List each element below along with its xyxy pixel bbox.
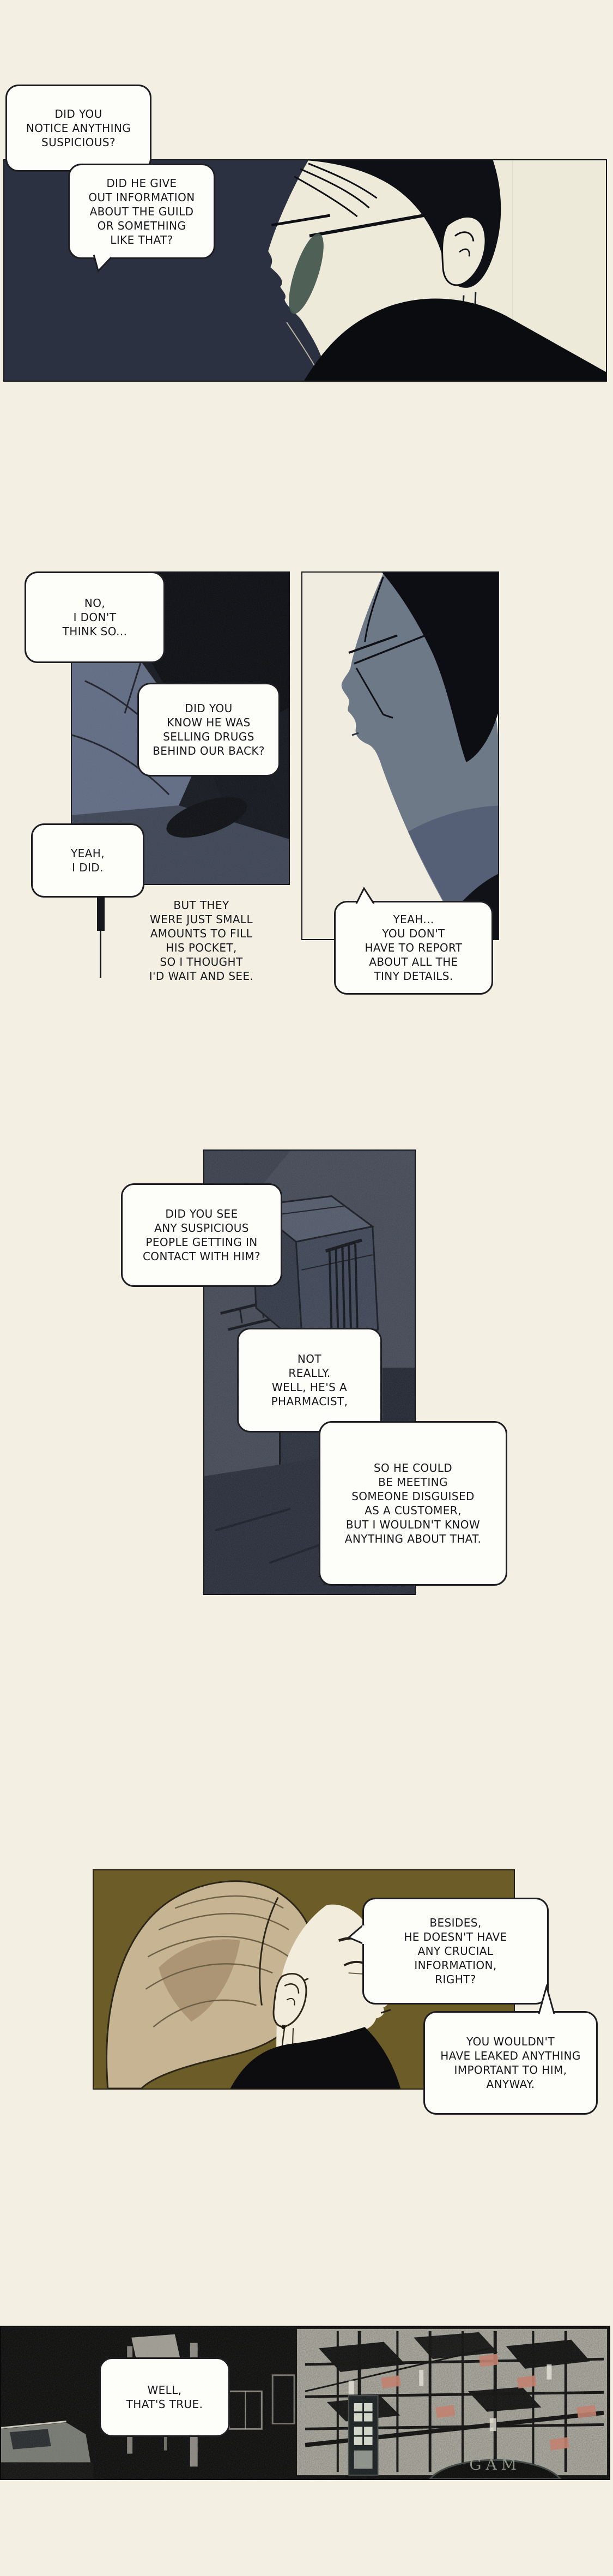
panel-6-art: GAM	[1, 2327, 609, 2479]
bubble-tail-up	[355, 887, 377, 905]
bubble-connector-line	[100, 931, 101, 978]
bubble-connector-bar	[97, 897, 105, 931]
speech-bubble-10: SO HE COULD BE MEETING SOMEONE DISGUISED…	[319, 1421, 507, 1586]
bubble-tail-left	[348, 1923, 365, 1945]
speech-bubble-9: NOT REALLY. WELL, HE'S A PHARMACIST,	[237, 1328, 382, 1433]
speech-text-6: BUT THEY WERE JUST SMALL AMOUNTS TO FILL…	[121, 889, 282, 992]
speech-bubble-7: YEAH... YOU DON'T HAVE TO REPORT ABOUT A…	[334, 901, 493, 995]
bubble-tail-up-long	[537, 1984, 556, 2015]
comic-page: GAM DID YOU NOTICE ANYTHING SUSPICIOUS?	[0, 0, 613, 2576]
speech-bubble-3: NO, I DON'T THINK SO...	[25, 571, 165, 663]
speech-bubble-4: DID YOU KNOW HE WAS SELLING DRUGS BEHIND…	[137, 683, 280, 777]
speech-bubble-12: YOU WOULDN'T HAVE LEAKED ANYTHING IMPORT…	[423, 2011, 598, 2115]
panel-3-art	[302, 573, 498, 939]
grain-overlay	[1, 2327, 609, 2479]
panel-cityscape: GAM	[0, 2326, 610, 2480]
speech-bubble-2: DID HE GIVE OUT INFORMATION ABOUT THE GU…	[68, 164, 215, 259]
panel-guild-member-profile	[301, 571, 499, 940]
speech-bubble-12-text: YOU WOULDN'T HAVE LEAKED ANYTHING IMPORT…	[440, 2035, 581, 2091]
speech-bubble-11: BESIDES, HE DOESN'T HAVE ANY CRUCIAL INF…	[362, 1898, 549, 2005]
speech-bubble-5: YEAH, I DID.	[31, 823, 144, 898]
speech-bubble-8: DID YOU SEE ANY SUSPICIOUS PEOPLE GETTIN…	[121, 1183, 282, 1287]
speech-bubble-2-text: DID HE GIVE OUT INFORMATION ABOUT THE GU…	[88, 176, 195, 247]
speech-bubble-13: WELL, THAT'S TRUE.	[99, 2357, 230, 2437]
bubble-tail-down	[90, 254, 114, 275]
speech-bubble-1: DID YOU NOTICE ANYTHING SUSPICIOUS?	[5, 85, 151, 172]
speech-bubble-7-text: YEAH... YOU DON'T HAVE TO REPORT ABOUT A…	[365, 912, 462, 983]
speech-bubble-11-text: BESIDES, HE DOESN'T HAVE ANY CRUCIAL INF…	[404, 1916, 507, 1987]
